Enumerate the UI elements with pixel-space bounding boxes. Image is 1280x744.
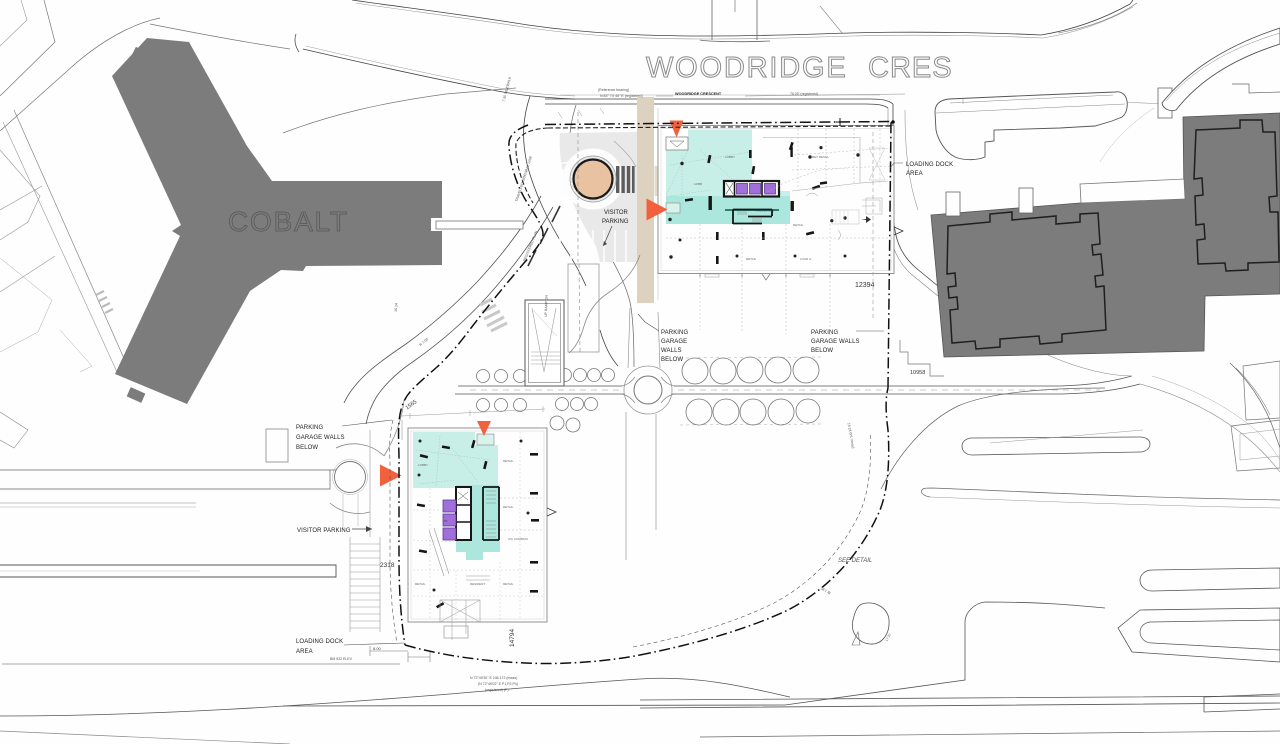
svg-text:BELOW: BELOW (296, 445, 318, 451)
svg-text:(N 72°49'02" E P1,P2,P4): (N 72°49'02" E P1,P2,P4) (478, 682, 518, 686)
svg-text:WALLS: WALLS (661, 348, 682, 354)
svg-text:AREA: AREA (906, 171, 923, 177)
svg-text:2318: 2318 (380, 562, 395, 569)
svg-text:WOODRIDGE CRESCENT: WOODRIDGE CRESCENT (675, 92, 722, 96)
svg-text:LOADING DOCK: LOADING DOCK (906, 162, 953, 168)
svg-text:15.24: 15.24 (394, 303, 399, 312)
svg-text:BELOW: BELOW (811, 348, 833, 354)
svg-text:CRES: CRES (868, 52, 953, 84)
svg-text:10958: 10958 (910, 370, 925, 376)
svg-text:PK: PK (444, 519, 448, 523)
svg-text:LOADING DOCK: LOADING DOCK (296, 639, 343, 645)
svg-text:RESIDENT: RESIDENT (470, 582, 485, 586)
svg-text:A/C COMMON: A/C COMMON (508, 537, 528, 541)
svg-text:LOAD G: LOAD G (800, 257, 812, 261)
svg-text:PARKING: PARKING (296, 425, 323, 431)
svg-text:12394: 12394 (855, 282, 875, 289)
svg-text:VISITOR PARKING: VISITOR PARKING (297, 528, 351, 534)
svg-text:UP RAMP DN: UP RAMP DN (544, 295, 549, 317)
svg-text:LOBB: LOBB (694, 182, 702, 186)
svg-text:RETAIL: RETAIL (793, 223, 804, 227)
svg-text:14794: 14794 (509, 629, 516, 647)
svg-text:(Reference bearing): (Reference bearing) (598, 88, 629, 92)
svg-text:PARKING UNIT: PARKING UNIT (755, 209, 775, 213)
svg-text:PARKING: PARKING (811, 330, 838, 336)
svg-text:RETAIL: RETAIL (503, 582, 514, 586)
svg-text:AREA: AREA (296, 649, 313, 655)
svg-text:BELOW: BELOW (661, 357, 683, 363)
svg-text:N 83° 74' 45" E (registered: N 83° 74' 45" E (registered) (600, 94, 643, 98)
svg-text:RETAIL: RETAIL (503, 459, 514, 463)
svg-text:RETAIL: RETAIL (746, 257, 757, 261)
svg-text:GARAGE WALLS: GARAGE WALLS (296, 435, 345, 441)
svg-text:RETAIL: RETAIL (503, 505, 514, 509)
svg-text:PARKING: PARKING (602, 219, 629, 225)
svg-text:LOBBY: LOBBY (418, 463, 428, 467)
svg-text:LOBBY: LOBBY (725, 155, 735, 159)
svg-text:COBALT: COBALT (228, 206, 349, 237)
svg-text:VISITOR: VISITOR (604, 210, 629, 216)
svg-text:RET RETAIL: RET RETAIL (812, 155, 829, 159)
svg-text:8.00: 8.00 (373, 646, 382, 651)
svg-text:SEE DETAIL: SEE DETAIL (838, 558, 872, 564)
svg-text:PARKING: PARKING (661, 330, 688, 336)
svg-text:GARAGE: GARAGE (661, 339, 687, 345)
svg-text:GARAGE WALLS: GARAGE WALLS (811, 339, 860, 345)
svg-text:N 72°49'30" E 246.172 (meas): N 72°49'30" E 246.172 (meas) (470, 676, 517, 680)
svg-text:WOODRIDGE: WOODRIDGE (646, 52, 847, 84)
svg-text:RETAIL: RETAIL (415, 582, 426, 586)
svg-text:(registered) (P): (registered) (P) (485, 688, 509, 692)
svg-text:BM 532 ELEV: BM 532 ELEV (330, 657, 353, 661)
